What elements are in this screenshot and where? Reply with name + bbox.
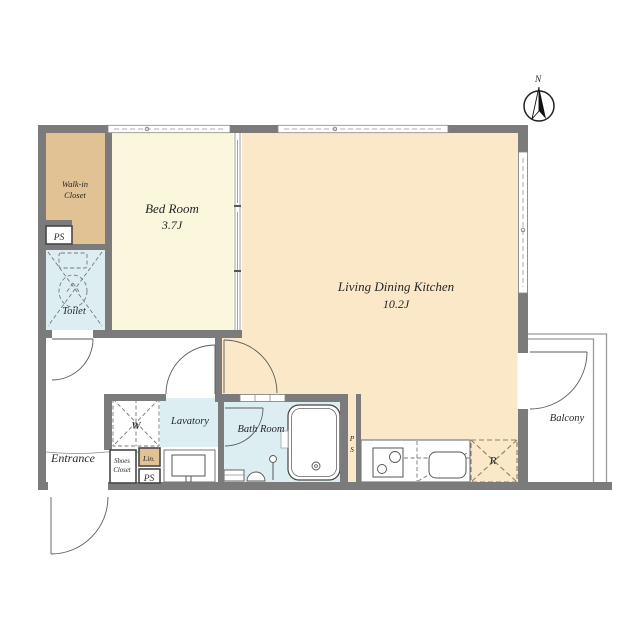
entrance-opening [48,482,108,490]
lavatory-sink-icon [164,450,215,482]
balcony-door-opening [518,353,529,409]
sliding-partition [233,133,242,330]
bathtub-icon [288,405,340,480]
kitchen-sink-icon [429,452,466,478]
ldk-window [278,125,448,132]
shoes-closet-label-1: Shoes [114,458,130,465]
pipe-space-upper-label: PS [53,233,65,243]
bedroom-window [108,125,230,132]
washer-pan-label: W [131,420,141,432]
walk-in-closet-room [46,133,105,220]
ldk-size-label: 10.2J [383,297,410,311]
linen-label: Lin. [142,454,155,463]
pipe-space-shaft-label-2: S [350,445,354,454]
refrigerator-label: R [489,455,497,467]
bathroom-label: Bath Room [238,424,285,435]
toilet-label: Toilet [62,306,87,317]
stove-icon [373,448,403,477]
walk-in-closet-label-1: Walk-in [62,179,88,189]
walk-in-closet-label-2: Closet [64,190,86,200]
ldk-label: Living Dining Kitchen [337,279,454,294]
bedroom-label: Bed Room [145,201,199,216]
walk-in-closet-room-lower [72,220,105,244]
ldk-side-window [519,152,528,293]
bathroom-window [240,395,285,402]
shoes-closet-label-2: Closet [113,467,131,474]
balcony-label: Balcony [550,413,585,424]
north-label: N [534,75,542,85]
pipe-space-shaft-label-1: P [349,434,355,443]
bedroom-size-label: 3.7J [161,218,183,232]
entrance-label: Entrance [50,451,96,465]
floor-plan-page: N Walk-in Closet PS Toilet Bed Room 3.7J… [0,0,640,640]
lavatory-label: Lavatory [170,416,209,427]
floor-plan: N Walk-in Closet PS Toilet Bed Room 3.7J… [0,0,640,640]
pipe-space-lower-label: PS [143,474,155,484]
